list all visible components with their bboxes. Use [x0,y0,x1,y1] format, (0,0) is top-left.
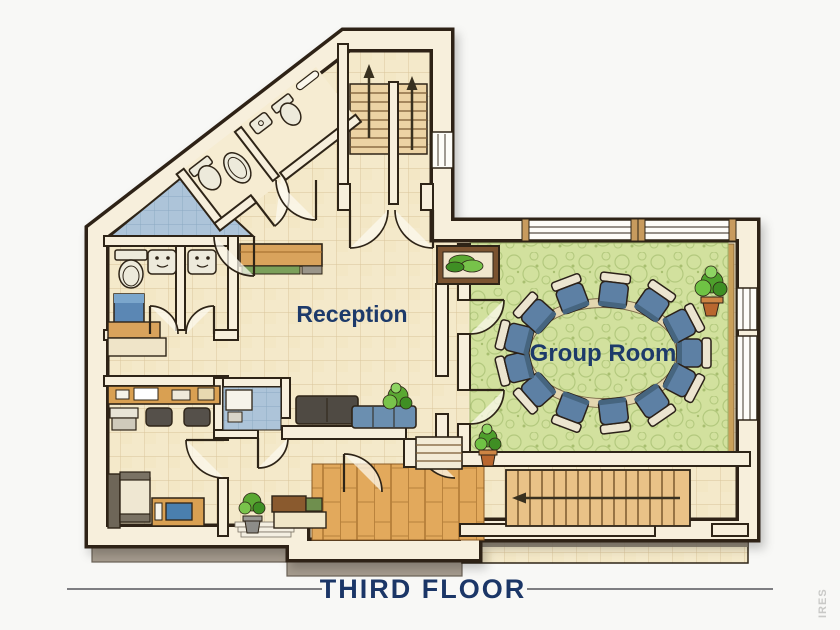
alcove-plant-cabinet [437,246,499,284]
corridor-cabinet [272,496,326,528]
reception-counter [240,244,322,274]
window [432,132,453,168]
reception-steps [416,437,462,469]
floor-plan-canvas: Reception Group Room THIRD FLOOR IRES [0,0,840,630]
appliance [226,390,252,410]
sink-icon [148,250,176,274]
floor-plan-page: Reception Group Room THIRD FLOOR IRES [0,0,840,630]
group-room-chair [597,397,631,434]
svg-text:IRES: IRES [817,588,829,618]
laptop-icon [166,503,192,520]
group-room-chair [597,272,631,309]
group-room-label: Group Room [530,340,677,367]
office-chair [146,408,172,426]
small-box [228,412,242,422]
window [522,219,638,241]
toilet-tank [115,250,147,260]
watermark: IRES [817,588,829,618]
bath-counter [108,322,160,338]
reception-label: Reception [296,301,407,327]
sink-icon [188,250,216,274]
lounge-armchair [108,472,150,528]
window [737,288,757,330]
bath-cabinet [108,338,166,356]
toilet-icon [119,260,143,288]
keyboard-icon [172,390,190,400]
printer-icon [110,408,138,418]
lower-staircase [506,470,690,526]
group-room-chair [677,338,711,368]
gray-tray [302,266,322,274]
wood-corridor-floor [312,464,484,540]
desk-item [116,390,129,399]
window [638,219,736,241]
pantry-closet [223,387,281,430]
window [737,336,757,420]
side-table-laptop [152,498,204,526]
monitor-icon [134,388,158,400]
office-chair [184,408,210,426]
page-title: THIRD FLOOR [320,574,526,604]
desk-item [198,388,214,400]
